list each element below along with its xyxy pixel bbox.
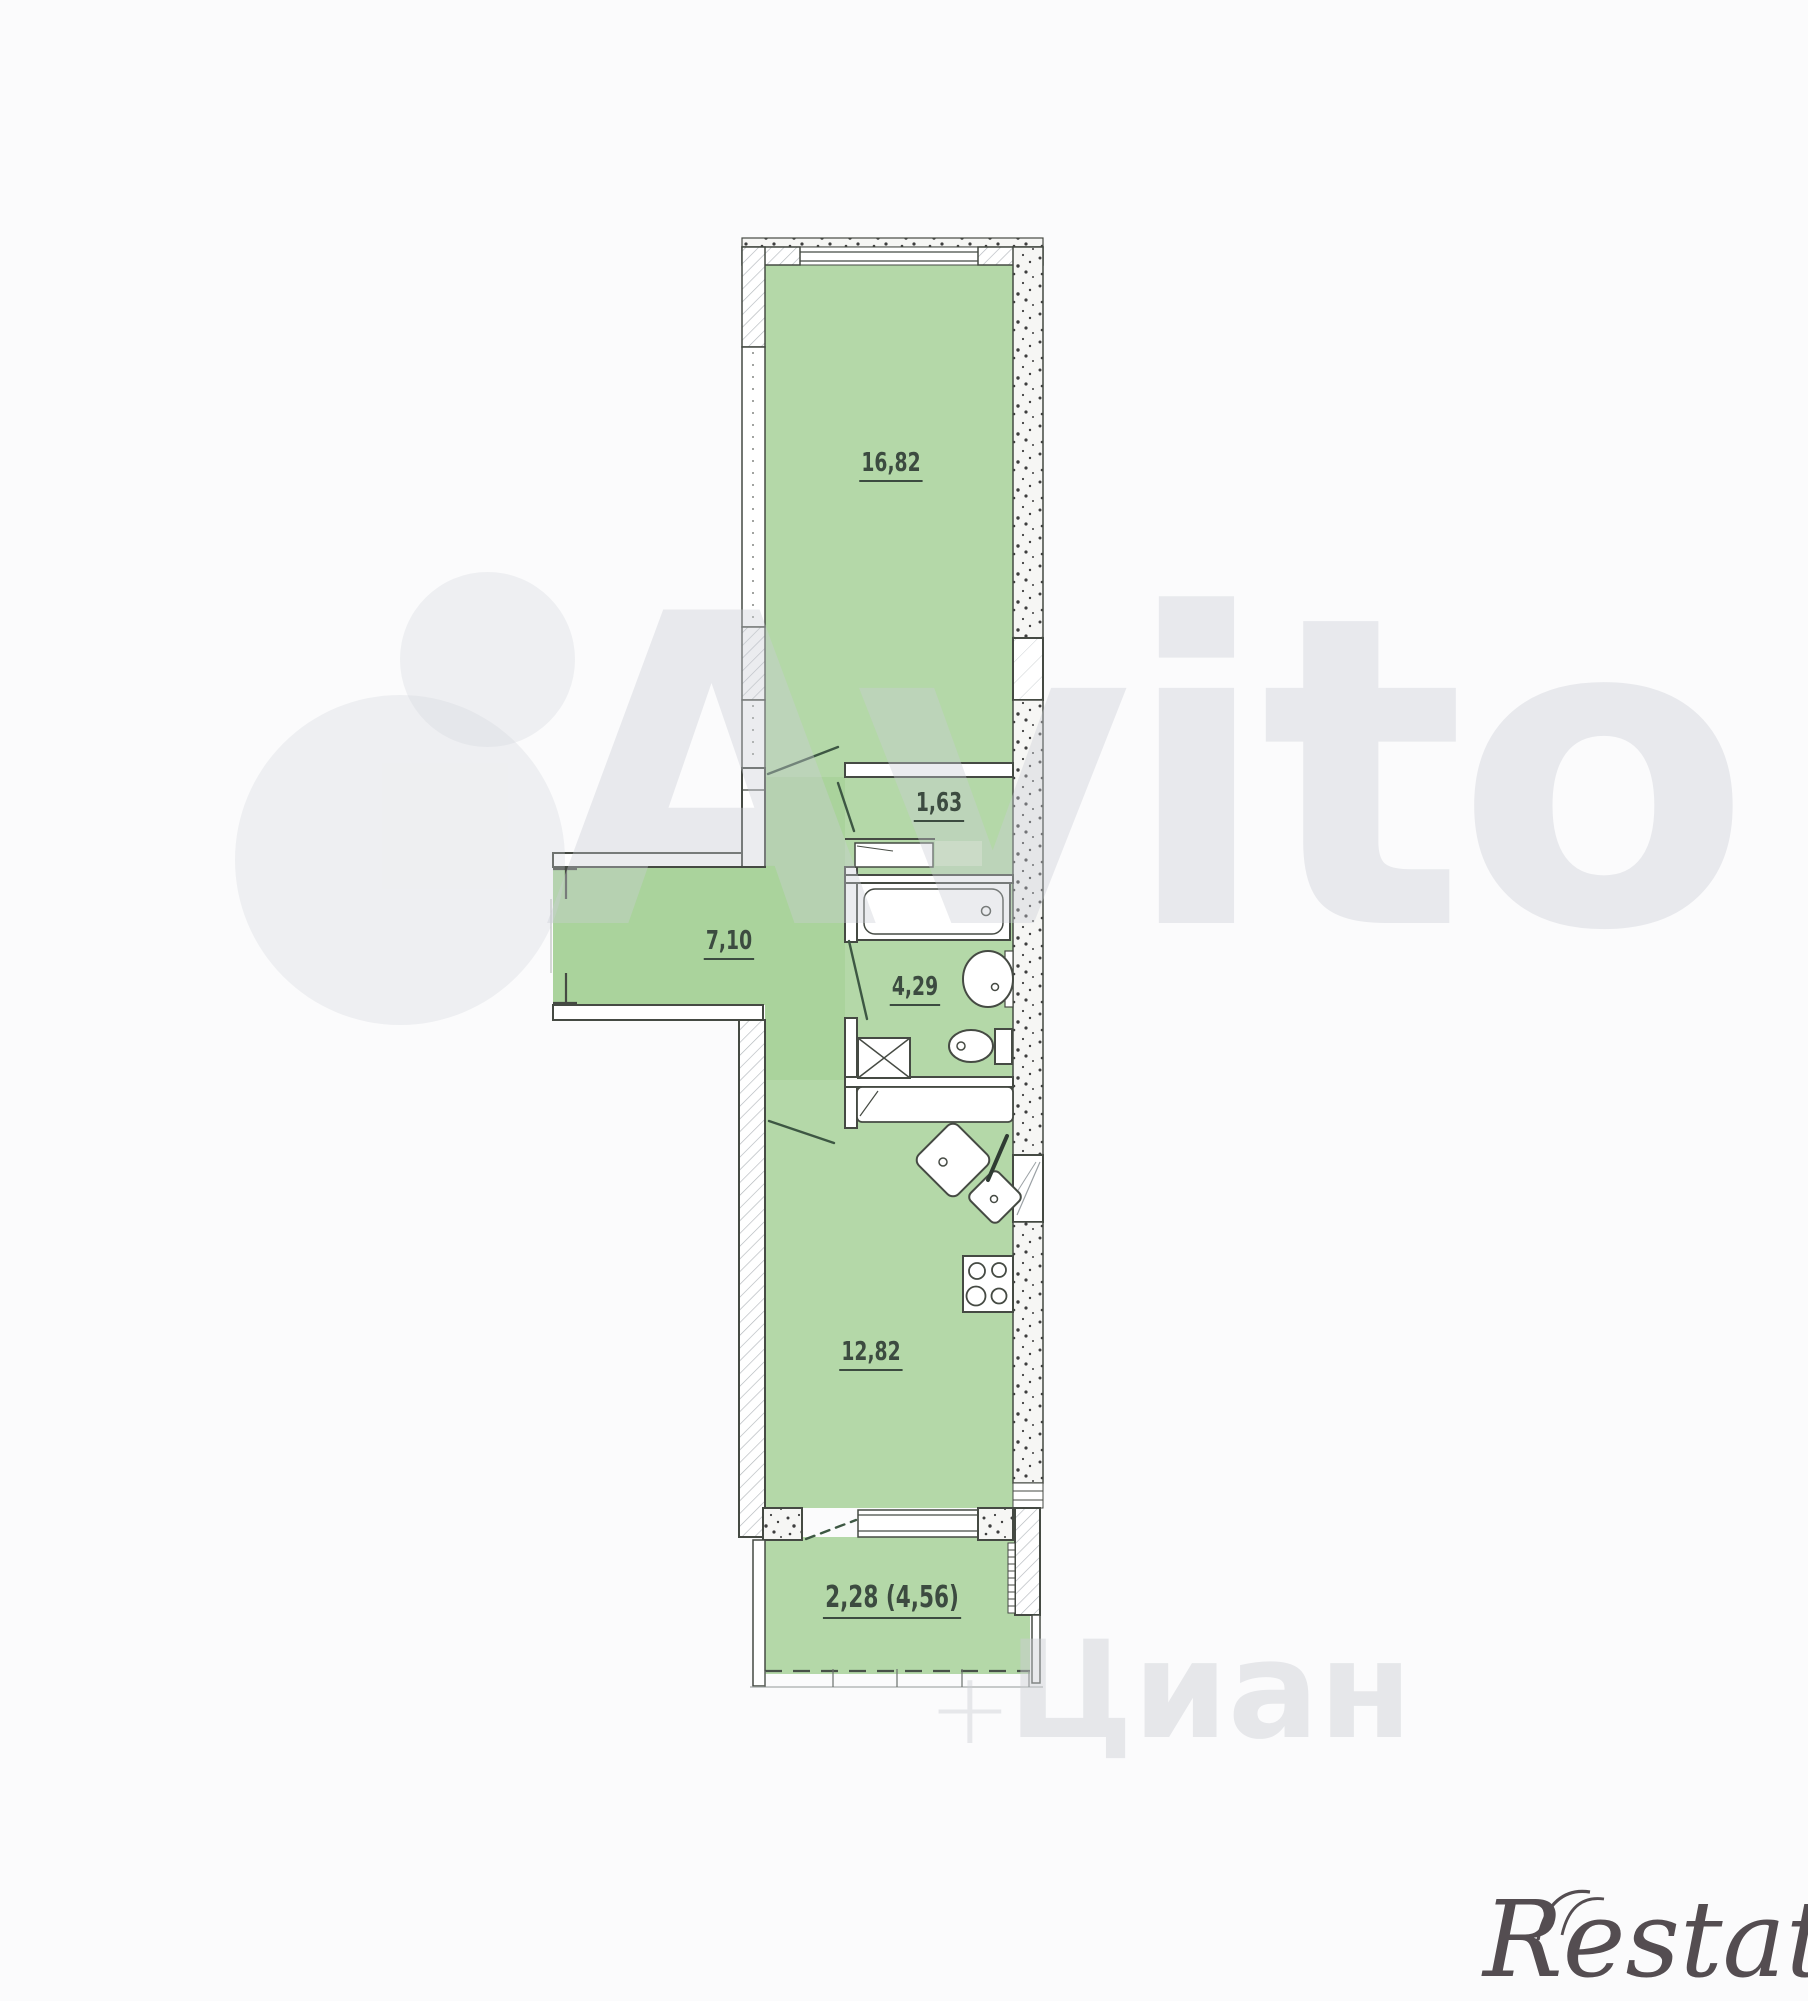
bottom-pier-left <box>763 1508 802 1540</box>
room-label-corridor: 7,10 <box>704 926 755 956</box>
avito-logo-circle-small <box>400 572 575 747</box>
kitchen-left-wall <box>739 1020 765 1537</box>
corridor-strip-area <box>765 777 845 1120</box>
balcony-window <box>858 1510 978 1537</box>
balcony-wall-right <box>1032 1615 1040 1683</box>
balcony-glazing <box>750 1669 1043 1687</box>
room-label-kitchen-living: 12,82 <box>839 1337 903 1367</box>
left-window-2 <box>742 700 765 768</box>
floor-areas <box>553 265 1030 1674</box>
right-wall-1 <box>1013 247 1043 638</box>
bathtub <box>857 883 1010 940</box>
room-label-hall: 1,63 <box>914 788 965 818</box>
avito-logo-circle-large <box>235 695 565 1025</box>
corridor-wall-bottom <box>553 1005 763 1020</box>
top-window <box>800 247 978 265</box>
bottom-pier-right <box>978 1508 1013 1540</box>
living-room-area <box>765 265 1013 777</box>
balcony-door-swing <box>806 1520 856 1539</box>
restate-logo-swoosh <box>1538 1891 1604 1940</box>
room-label-bathroom: 4,29 <box>890 972 941 1002</box>
corridor-wall-top <box>553 853 742 867</box>
floorplan-page: 16,82 1,63 7,10 4,29 12,82 2,28 (4,56) A… <box>0 0 1808 2000</box>
balcony-wall-left <box>753 1540 765 1686</box>
balcony-pier-right <box>1015 1508 1040 1615</box>
kitchen-counter <box>857 1087 1013 1122</box>
toilet <box>949 1030 993 1062</box>
left-wall-solid <box>742 768 765 867</box>
hall-niche <box>935 841 982 866</box>
bath-wall-left-lower <box>845 1018 857 1128</box>
right-wall-panel <box>1013 638 1043 700</box>
left-wall-hatch-2 <box>742 627 765 700</box>
right-wall-gap <box>1013 1483 1043 1508</box>
top-wall-band <box>742 238 1043 247</box>
interior-wall-hall <box>845 763 1013 777</box>
left-wall-hatch-1 <box>742 247 765 347</box>
wash-basin <box>963 951 1013 1007</box>
room-label-living: 16,82 <box>859 448 923 478</box>
room-label-balcony: 2,28 (4,56) <box>823 1580 961 1615</box>
right-wall-2 <box>1013 700 1043 1155</box>
bath-wall-divider <box>845 875 1013 883</box>
wardrobe <box>855 843 933 867</box>
right-wall-3 <box>1013 1222 1043 1483</box>
toilet-tank <box>995 1029 1012 1064</box>
